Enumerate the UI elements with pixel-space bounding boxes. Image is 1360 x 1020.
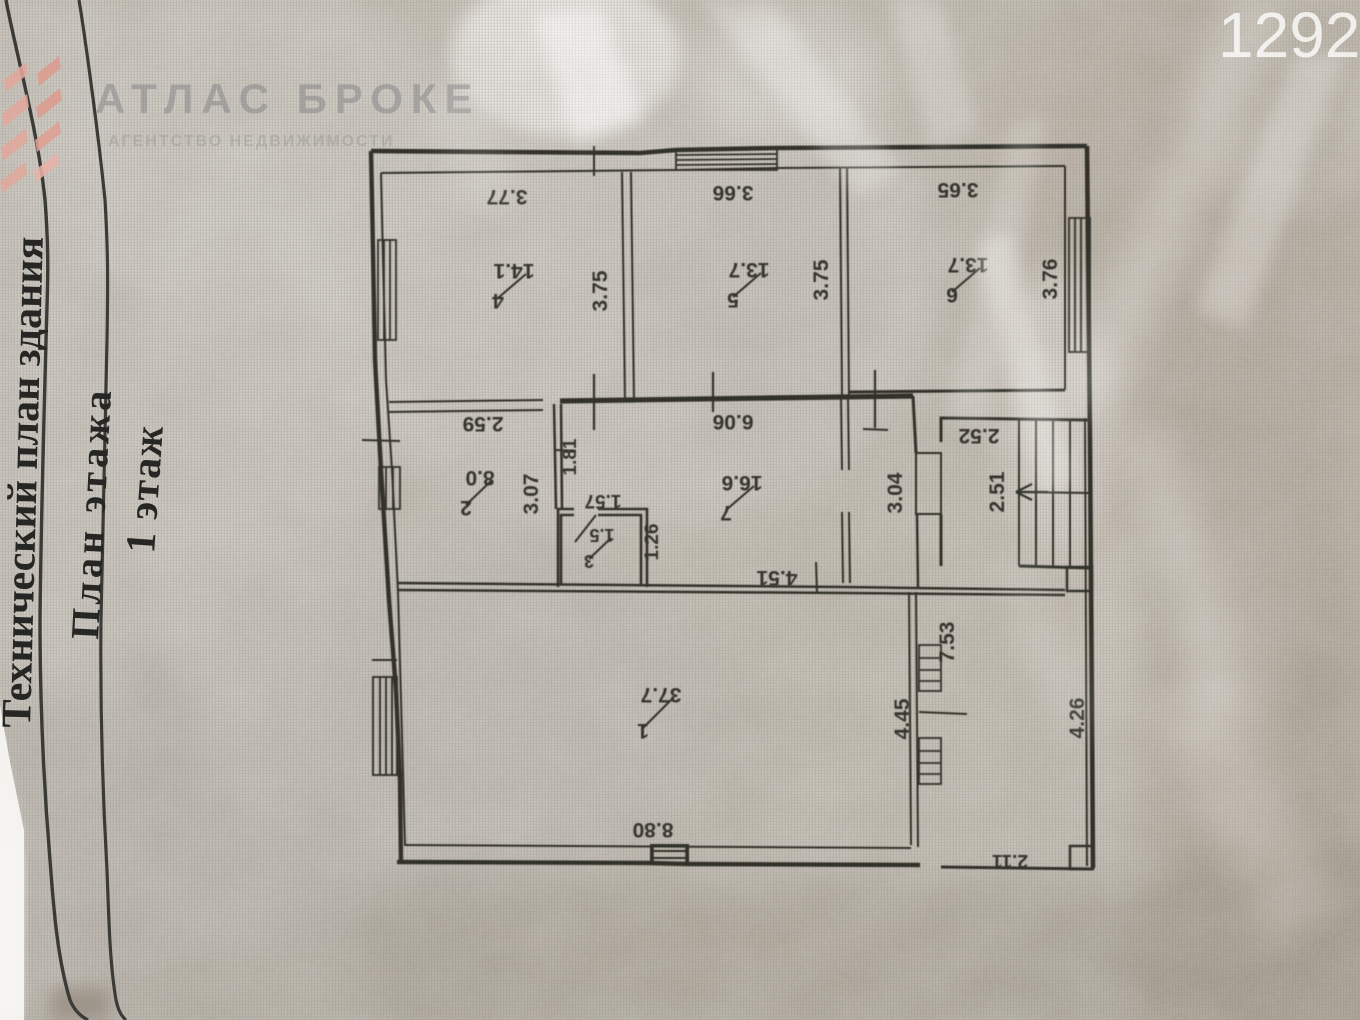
svg-text:1.26: 1.26	[642, 524, 663, 561]
svg-text:2: 2	[460, 496, 472, 519]
svg-text:6.06: 6.06	[713, 410, 754, 433]
svg-text:АГЕНТСТВО НЕДВИЖИМОСТИ: АГЕНТСТВО НЕДВИЖИМОСТИ	[108, 133, 394, 150]
svg-text:7.53: 7.53	[936, 622, 959, 663]
svg-text:2.52: 2.52	[959, 424, 1000, 447]
svg-text:2.51: 2.51	[986, 471, 1009, 512]
svg-text:1.57: 1.57	[585, 490, 622, 511]
svg-text:1 этаж: 1 этаж	[118, 424, 173, 555]
svg-text:АТЛАС БРОКЕ: АТЛАС БРОКЕ	[95, 75, 481, 122]
svg-text:8.80: 8.80	[633, 818, 674, 841]
svg-text:2.11: 2.11	[992, 850, 1028, 871]
svg-text:3.04: 3.04	[884, 472, 907, 513]
svg-text:14.1: 14.1	[493, 259, 534, 282]
svg-text:3.76: 3.76	[1039, 259, 1062, 300]
svg-text:8.0: 8.0	[465, 466, 494, 489]
svg-text:1: 1	[637, 719, 649, 742]
svg-text:4.51: 4.51	[756, 566, 797, 589]
svg-text:3: 3	[584, 551, 594, 571]
svg-text:3.75: 3.75	[810, 259, 833, 300]
svg-text:3.75: 3.75	[589, 270, 612, 311]
svg-text:37.7: 37.7	[641, 683, 682, 706]
svg-text:4: 4	[492, 289, 504, 312]
svg-text:7: 7	[720, 501, 732, 524]
svg-text:4.45: 4.45	[891, 698, 914, 739]
svg-text:13.7: 13.7	[729, 258, 770, 281]
svg-text:3.07: 3.07	[520, 474, 543, 515]
svg-text:6: 6	[946, 283, 958, 306]
svg-text:5: 5	[727, 288, 739, 311]
svg-text:1.81: 1.81	[560, 438, 581, 475]
svg-text:3.65: 3.65	[937, 178, 978, 201]
svg-text:16.6: 16.6	[722, 471, 763, 494]
svg-text:3.66: 3.66	[713, 181, 754, 204]
svg-text:2.59: 2.59	[463, 412, 504, 435]
svg-text:1.5: 1.5	[589, 525, 614, 545]
